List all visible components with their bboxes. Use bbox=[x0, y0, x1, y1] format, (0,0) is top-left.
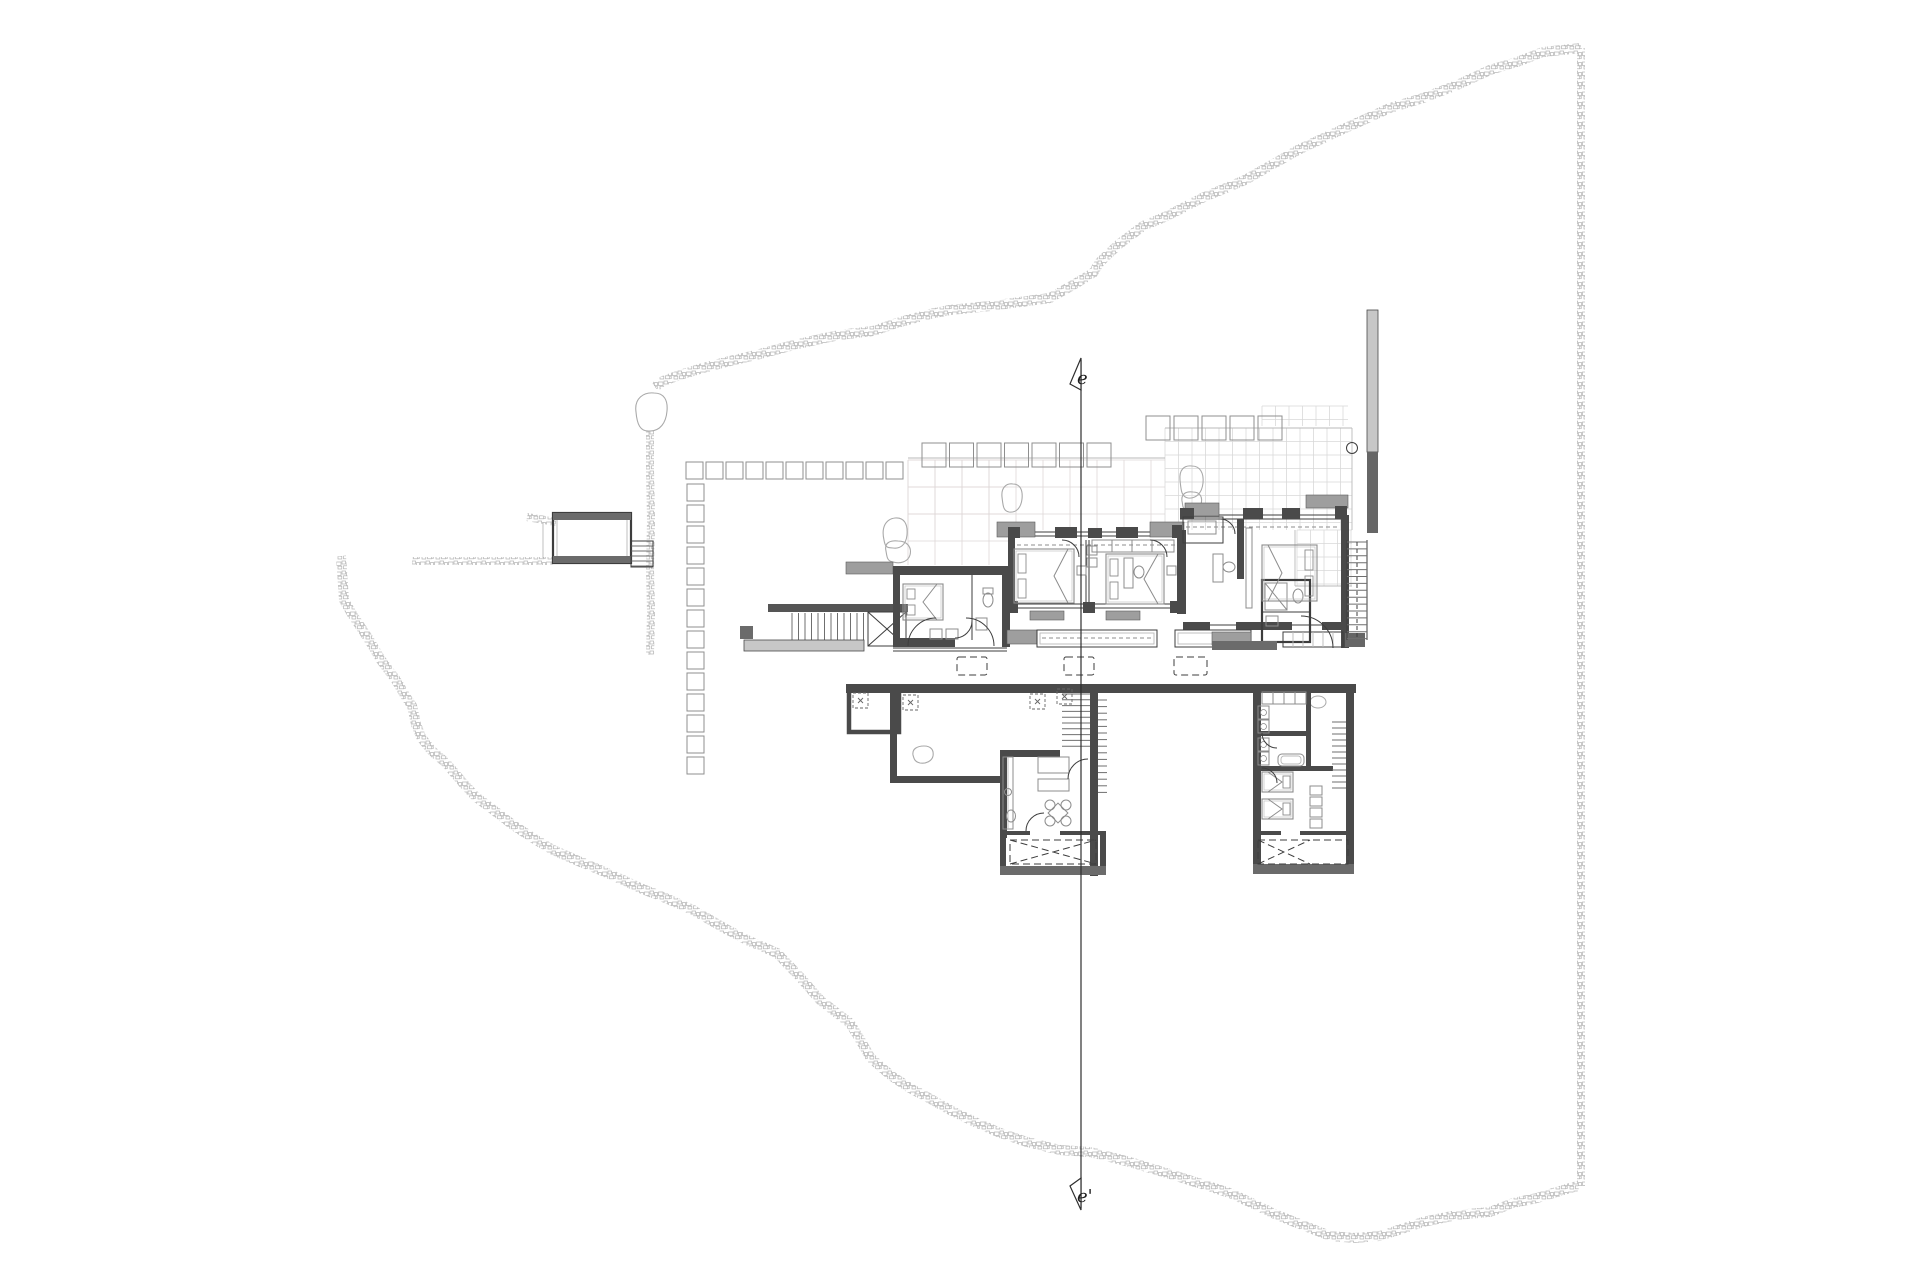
paper-background bbox=[0, 0, 1920, 1280]
section-label-bottom: e' bbox=[1077, 1186, 1093, 1207]
site-plan-sheet: e e' bbox=[0, 0, 1920, 1280]
garden-wall-stub bbox=[527, 517, 556, 522]
master-south-wall bbox=[1183, 622, 1347, 630]
garden-wall-vertical bbox=[650, 430, 651, 655]
floor-plan-svg: e e' bbox=[0, 0, 1920, 1280]
section-label-top: e bbox=[1077, 368, 1088, 389]
